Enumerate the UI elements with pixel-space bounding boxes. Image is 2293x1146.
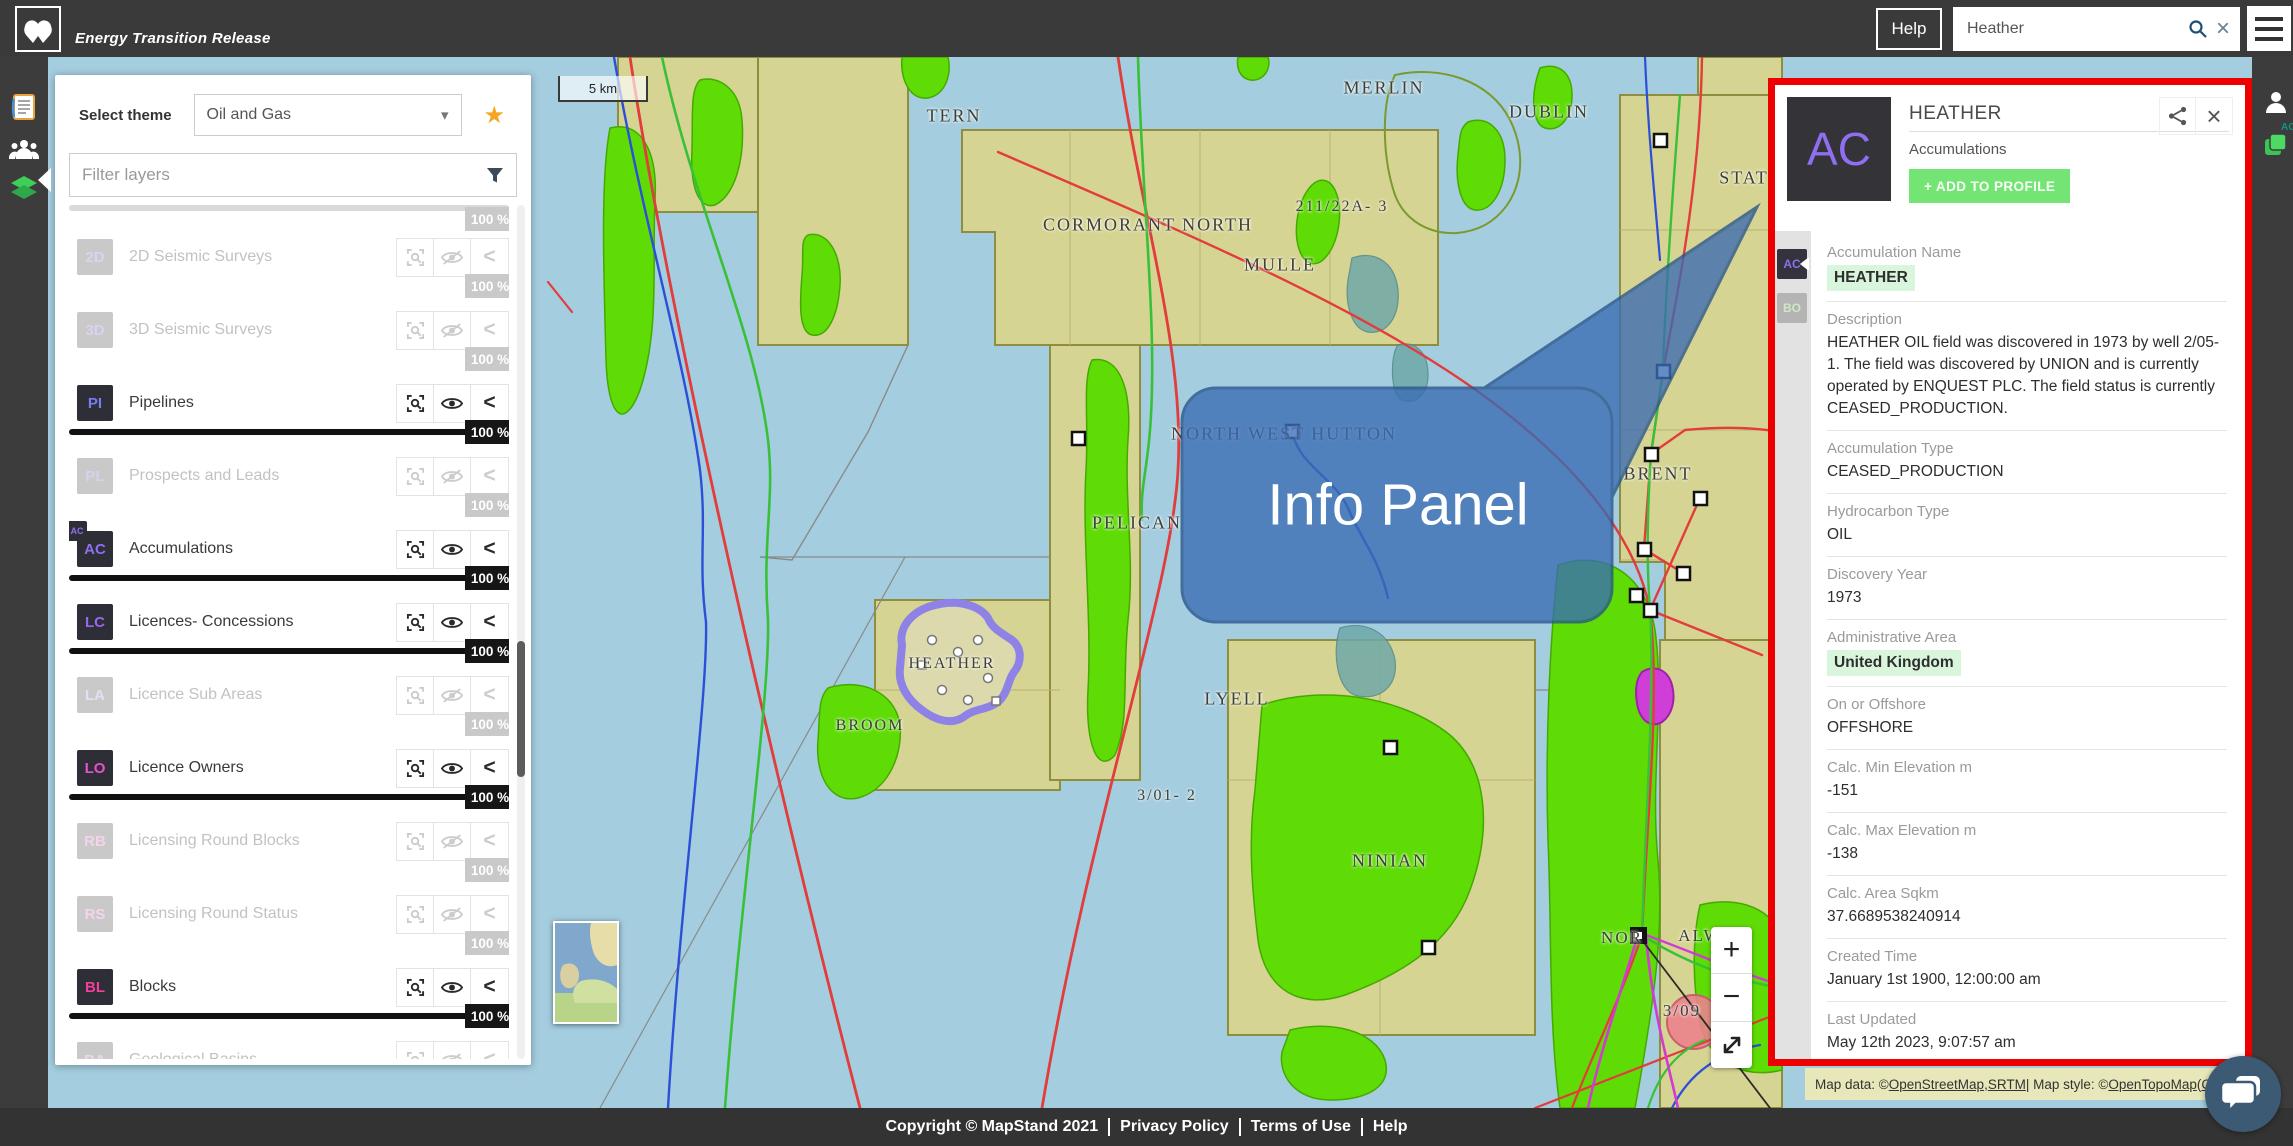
field-row: On or OffshoreOFFSHORE [1827,687,2227,750]
field-value: May 12th 2023, 9:07:57 am [1827,1032,2227,1054]
profile-ac-badge: AC [2281,122,2293,133]
footer-bar: Copyright © MapStand 2021 Privacy Policy… [0,1108,2293,1146]
menu-icon[interactable] [2247,6,2291,51]
info-panel-annotation-frame: AC HEATHER Accumulations + ADD TO PROFIL… [1768,78,2252,1066]
search-icon[interactable] [2188,19,2208,39]
layer-name: Accumulations [129,540,233,558]
expand-legend-icon[interactable]: < [471,458,508,495]
field-label: Calc. Max Elevation m [1827,822,2227,839]
rail-tab-ac[interactable]: AC [1777,249,1807,279]
expand-legend-icon[interactable]: < [471,1042,508,1060]
field-row: Last UpdatedMay 12th 2023, 9:07:57 am [1827,1002,2227,1059]
visibility-on-icon[interactable] [434,750,471,787]
layer-row-la[interactable]: LALicence Sub Areas<100 % [69,669,509,731]
layer-name: Geological Basins [129,1051,257,1059]
field-row: Administrative AreaUnited Kingdom [1827,620,2227,687]
share-icon[interactable] [2160,98,2196,134]
field-row: Calc. Min Elevation m-151 [1827,750,2227,813]
logo-m-icon [21,14,55,44]
layer-row-pi[interactable]: PIPipelines<100 % [69,377,509,439]
help-button[interactable]: Help [1876,8,1942,50]
opacity-slider[interactable]: 100 % [69,721,509,727]
opacity-value: 100 % [465,639,509,663]
zoom-to-layer-icon[interactable] [397,458,434,495]
field-value: -138 [1827,843,2227,865]
copyright-text: Copyright © MapStand 2021 [885,1118,1098,1136]
overview-minimap[interactable] [553,921,619,1024]
layer-badge: 3D [77,312,113,348]
visibility-on-icon[interactable] [434,969,471,1006]
layer-badge: LC [77,604,113,640]
info-panel-header: AC HEATHER Accumulations + ADD TO PROFIL… [1775,85,2245,231]
scrollbar-thumb[interactable] [517,641,525,778]
layer-name: 3D Seismic Surveys [129,321,272,339]
profile-layers-icon[interactable]: AC [2261,129,2291,159]
zoom-in-button[interactable]: + [1711,927,1752,974]
layer-row-pl[interactable]: PLProspects and Leads<100 % [69,450,509,512]
field-label: Accumulation Name [1827,244,2227,261]
layer-row-3d[interactable]: 3D3D Seismic Surveys<100 % [69,304,509,366]
field-row: Hydrocarbon TypeOIL [1827,494,2227,557]
layer-badge: BA [77,1042,113,1059]
field-row: Accumulation TypeCEASED_PRODUCTION [1827,431,2227,494]
map-zoom-controls: + − [1711,927,1752,1068]
top-bar: Energy Transition Release Help × [0,0,2293,57]
opacity-value: 100 % [465,493,509,517]
field-value: HEATHER OIL field was discovered in 1973… [1827,332,2227,420]
accumulation-avatar: AC [1787,97,1891,201]
layer-list: 100 % 2D2D Seismic Surveys<100 %3D3D Sei… [69,205,509,1059]
left-sidebar [0,57,48,1108]
opentopomap-link[interactable]: OpenTopoMap [2108,1077,2197,1092]
filter-layers-field [69,153,517,197]
field-value: CEASED_PRODUCTION [1827,461,2227,483]
layer-row-ba[interactable]: BAGeological Basins<100 % [69,1034,509,1059]
search-bar: × [1953,7,2240,51]
filter-layers-input[interactable] [82,165,486,185]
chat-widget-button[interactable] [2205,1056,2281,1132]
attribute-fields: Accumulation NameHEATHERDescriptionHEATH… [1811,231,2245,1059]
footer-help-link[interactable]: Help [1373,1118,1408,1136]
visibility-off-icon[interactable] [434,239,471,276]
zoom-to-layer-icon[interactable] [397,750,434,787]
field-value: -151 [1827,780,2227,802]
layer-row-rb[interactable]: RBLicensing Round Blocks<100 % [69,815,509,877]
layer-badge: LA [77,677,113,713]
layer-badge: 2D [77,239,113,275]
opacity-value: 100 % [465,712,509,736]
opacity-value: 100 % [465,274,509,298]
opacity-value: 100 % [465,931,509,955]
zoom-to-layer-icon[interactable] [397,239,434,276]
opacity-slider[interactable]: 100 % [69,940,509,946]
layer-badge: RS [77,896,113,932]
rail-tab-bo[interactable]: BO [1777,293,1807,323]
opacity-slider[interactable]: 100 % [69,283,509,289]
field-label: Discovery Year [1827,566,2227,583]
layer-name: Licensing Round Status [129,905,298,923]
mapstand-logo[interactable] [15,6,61,52]
expand-legend-icon[interactable]: < [471,531,508,568]
search-input[interactable] [1967,20,2188,38]
zoom-to-layer-icon[interactable] [397,969,434,1006]
clear-search-icon[interactable]: × [2216,17,2230,41]
layer-name: Blocks [129,978,176,996]
zoom-to-layer-icon[interactable] [397,531,434,568]
field-value: HEATHER [1827,265,2227,291]
field-value: United Kingdom [1827,650,2227,676]
visibility-on-icon[interactable] [434,604,471,641]
opacity-value: 100 % [465,347,509,371]
layer-badge: BL [77,969,113,1005]
field-value: January 1st 1900, 12:00:00 am [1827,969,2227,991]
feature-layer-subtitle: Accumulations [1909,141,2007,158]
opacity-value: 100 % [465,1004,509,1028]
osm-link[interactable]: OpenStreetMap [1889,1077,1984,1092]
zoom-to-layer-icon[interactable] [397,604,434,641]
layer-row-rs[interactable]: RSLicensing Round Status<100 % [69,888,509,950]
expand-legend-icon[interactable]: < [471,823,508,860]
close-icon[interactable]: × [2196,98,2232,134]
layer-badge: PL [77,458,113,494]
expand-legend-icon[interactable]: < [471,750,508,787]
feature-info-panel: AC HEATHER Accumulations + ADD TO PROFIL… [1775,85,2245,1059]
expand-legend-icon[interactable]: < [471,677,508,714]
opacity-slider[interactable]: 100 % [69,794,509,800]
opacity-slider[interactable]: 100 % [69,648,509,654]
field-label: Accumulation Type [1827,440,2227,457]
user-account-icon[interactable] [2261,87,2291,117]
field-row: Created TimeJanuary 1st 1900, 12:00:00 a… [1827,939,2227,1002]
layer-name: Licensing Round Blocks [129,832,300,850]
zoom-to-layer-icon[interactable] [397,385,434,422]
theme-value: Oil and Gas [207,106,291,124]
expand-legend-icon[interactable]: < [471,385,508,422]
layer-name: Licences- Concessions [129,613,294,631]
right-sidebar: AC [2252,57,2293,1108]
layer-badge: ACAC [77,531,113,567]
field-value: 1973 [1827,587,2227,609]
select-theme-label: Select theme [79,107,172,124]
layer-name: 2D Seismic Surveys [129,248,272,266]
field-value: OIL [1827,524,2227,546]
opacity-value: 100 % [465,207,509,231]
layer-badge: RB [77,823,113,859]
terms-of-use-link[interactable]: Terms of Use [1251,1118,1351,1136]
layer-row-2d[interactable]: 2D2D Seismic Surveys<100 % [69,231,509,293]
report-document-icon[interactable] [9,92,39,122]
visibility-off-icon[interactable] [434,312,471,349]
visibility-on-icon[interactable] [434,385,471,422]
field-label: Hydrocarbon Type [1827,503,2227,520]
minimap-image [555,923,617,1022]
layers-panel: Select theme Oil and Gas ▾ ★ 100 % 2D2D … [55,75,531,1065]
field-value: OFFSHORE [1827,717,2227,739]
opacity-value: 100 % [465,420,509,444]
field-label: On or Offshore [1827,696,2227,713]
zoom-to-layer-icon[interactable] [397,896,434,933]
layer-name: Pipelines [129,394,194,412]
field-label: Administrative Area [1827,629,2227,646]
field-label: Last Updated [1827,1011,2227,1028]
visibility-on-icon[interactable] [434,531,471,568]
privacy-policy-link[interactable]: Privacy Policy [1120,1118,1229,1136]
field-row: Accumulation NameHEATHER [1827,235,2227,302]
field-row: Discovery Year1973 [1827,557,2227,620]
opacity-slider[interactable]: 100 % [69,1013,509,1019]
field-label: Description [1827,311,2227,328]
layer-name: Prospects and Leads [129,467,279,485]
theme-dropdown[interactable]: Oil and Gas ▾ [194,94,462,136]
srtm-link[interactable]: SRTM [1988,1077,2026,1092]
opacity-slider[interactable]: 100 % [69,356,509,362]
zoom-to-layer-icon[interactable] [397,677,434,714]
visibility-off-icon[interactable] [434,1042,471,1060]
field-row: Calc. Area Sqkm37.6689538240914 [1827,876,2227,939]
layer-badge: LO [77,750,113,786]
opacity-slider[interactable]: 100 % [69,575,509,581]
field-label: Calc. Min Elevation m [1827,759,2227,776]
opacity-value: 100 % [465,858,509,882]
application-window: MERLINDUBLINTERN211/22A- 3CORMORANT NORT… [0,0,2293,1146]
opacity-value: 100 % [465,566,509,590]
opacity-slider[interactable]: 100 % [69,429,509,435]
feature-title: HEATHER [1909,103,2002,125]
layers-panel-icon[interactable] [9,173,39,203]
community-people-icon[interactable] [9,135,39,165]
favorite-star-icon[interactable]: ★ [484,101,506,130]
layer-row-lc[interactable]: LCLicences- Concessions<100 % [69,596,509,658]
layer-row-lo[interactable]: LOLicence Owners<100 % [69,742,509,804]
layer-badge: PI [77,385,113,421]
visibility-off-icon[interactable] [434,458,471,495]
expand-icon [1720,1033,1744,1057]
field-label: Created Time [1827,948,2227,965]
expand-legend-icon[interactable]: < [471,239,508,276]
scale-bar: 5 km [558,76,648,102]
expand-legend-icon[interactable]: < [471,604,508,641]
chevron-down-icon: ▾ [441,106,449,124]
fullscreen-button[interactable] [1711,1022,1752,1068]
layer-row-ac[interactable]: ACACAccumulations<100 % [69,523,509,585]
chat-icon [2222,1074,2264,1114]
zoom-to-layer-icon[interactable] [397,312,434,349]
field-label: Calc. Area Sqkm [1827,885,2227,902]
field-row: DescriptionHEATHER OIL field was discove… [1827,302,2227,431]
add-to-profile-button[interactable]: + ADD TO PROFILE [1909,169,2070,203]
layer-name: Licence Owners [129,759,244,777]
app-title: Energy Transition Release [75,30,271,47]
visibility-off-icon[interactable] [434,823,471,860]
zoom-to-layer-icon[interactable] [397,1042,434,1060]
layer-row-bl[interactable]: BLBlocks<100 % [69,961,509,1023]
field-row: Calc. Max Elevation m-138 [1827,813,2227,876]
layer-row-partial: 100 % [69,205,509,221]
expand-legend-icon[interactable]: < [471,896,508,933]
opacity-slider[interactable]: 100 % [69,502,509,508]
opacity-slider[interactable]: 100 % [69,867,509,873]
expand-legend-icon[interactable]: < [471,969,508,1006]
visibility-off-icon[interactable] [434,677,471,714]
expand-legend-icon[interactable]: < [471,312,508,349]
visibility-off-icon[interactable] [434,896,471,933]
field-value: 37.6689538240914 [1827,906,2227,928]
alwyn-node [1630,927,1647,944]
zoom-out-button[interactable]: − [1711,974,1752,1021]
layer-name: Licence Sub Areas [129,686,262,704]
layers-scrollbar[interactable] [517,205,525,1059]
feature-tabs-rail: AC BO [1775,231,1811,1059]
filter-funnel-icon[interactable] [486,167,504,184]
opacity-value: 100 % [465,785,509,809]
layer-mini-badge: AC [69,521,87,541]
panel-collapse-handle[interactable] [38,168,51,192]
zoom-to-layer-icon[interactable] [397,823,434,860]
